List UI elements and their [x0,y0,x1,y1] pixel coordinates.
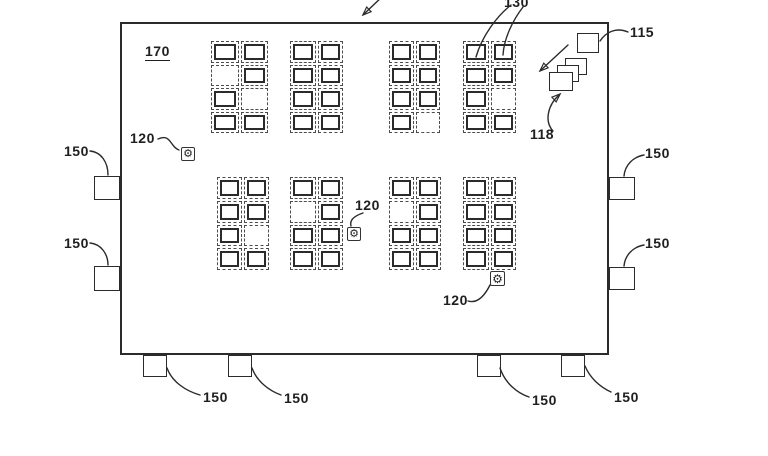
pallet-square [419,251,438,267]
robot-icon: ⚙ [181,147,195,161]
storage-cell [217,177,242,199]
pallet-square [214,91,236,107]
storage-cell [416,225,441,247]
storage-cell [318,177,344,199]
dock-door [609,177,635,200]
label-120-1: 120 [130,131,155,145]
storage-cell [491,201,517,223]
leader-150-l1 [90,151,108,175]
pallet-square [321,91,341,107]
storage-cell [318,112,344,134]
dock-door [94,176,120,200]
storage-cell [290,88,316,110]
storage-cell [463,201,489,223]
pallet-square [244,44,266,60]
storage-cell [318,248,344,270]
storage-block [462,176,517,271]
storage-cell [463,177,489,199]
storage-cell [318,65,344,87]
storage-cell [241,41,269,63]
storage-cell [416,201,441,223]
storage-block [289,40,344,134]
pallet-square [466,115,486,131]
storage-block [388,40,441,134]
storage-cell [463,225,489,247]
storage-cell [491,65,517,87]
storage-cell [241,112,269,134]
pallet-square [494,68,514,84]
leader-150-b1 [167,368,200,395]
pallet-square [293,228,313,244]
storage-cell [389,65,414,87]
pallet-square [419,204,438,220]
storage-cell [318,88,344,110]
label-120-2: 120 [355,198,380,212]
pallet-square [419,44,438,60]
container-square-118 [549,72,573,91]
storage-block [388,176,442,271]
label-150-left-1: 150 [64,144,89,158]
storage-cell [211,88,239,110]
leader-150-b2 [252,368,281,395]
pallet-square [321,228,341,244]
storage-cell [416,112,441,134]
patent-figure: 170 ⚙⚙⚙130115118120120120150150150150150… [0,0,768,456]
pallet-square [214,44,236,60]
storage-cell [217,248,242,270]
pallet-square [293,44,313,60]
dock-door [228,355,252,377]
pallet-square [220,204,239,220]
storage-cell [389,248,414,270]
pallet-square [392,91,411,107]
storage-cell [463,112,489,134]
leader-150-l2 [90,243,108,265]
storage-cell [290,201,316,223]
dock-door [477,355,501,377]
pallet-square [466,180,486,196]
storage-cell [211,112,239,134]
pallet-square [220,251,239,267]
leader-150-r1 [624,155,644,176]
gear-icon: ⚙ [492,273,503,285]
item-square-115 [577,33,599,53]
storage-cell [463,41,489,63]
storage-cell [389,41,414,63]
pallet-square [392,251,411,267]
label-150-bottom-2: 150 [284,391,309,405]
label-150-left-2: 150 [64,236,89,250]
pallet-square [321,115,341,131]
storage-cell [244,177,269,199]
storage-cell [491,112,517,134]
storage-cell [491,41,517,63]
storage-cell [244,225,269,247]
pallet-square [419,68,438,84]
label-150-bottom-1: 150 [203,390,228,404]
label-118: 118 [530,127,554,141]
storage-cell [290,41,316,63]
pallet-square [494,180,514,196]
label-150-right-1: 150 [645,146,670,160]
pallet-square [321,44,341,60]
storage-cell [416,41,441,63]
dock-door [94,266,120,291]
storage-cell [290,225,316,247]
storage-cell [244,248,269,270]
leader-150-b3 [500,368,529,397]
storage-cell [491,248,517,270]
storage-cell [463,248,489,270]
storage-cell [389,225,414,247]
pallet-square [214,115,236,131]
pallet-square [247,251,266,267]
storage-cell [217,201,242,223]
storage-cell [416,88,441,110]
pallet-square [244,68,266,84]
storage-cell [290,112,316,134]
pallet-square [321,180,341,196]
robot-icon: ⚙ [347,227,361,241]
pallet-square [466,204,486,220]
label-170: 170 [145,44,170,61]
storage-block [210,40,269,134]
pallet-square [466,228,486,244]
dock-door [609,267,635,290]
pallet-square [220,228,239,244]
storage-cell [389,177,414,199]
storage-cell [491,88,517,110]
storage-cell [318,201,344,223]
pallet-square [392,180,411,196]
pallet-square [466,251,486,267]
storage-cell [244,201,269,223]
pallet-square [494,115,514,131]
label-150-bottom-3: 150 [532,393,557,407]
pallet-square [321,204,341,220]
pallet-square [293,68,313,84]
storage-cell [416,65,441,87]
pallet-square [494,44,514,60]
storage-cell [318,41,344,63]
storage-cell [389,112,414,134]
label-120-3: 120 [443,293,468,307]
pallet-square [419,180,438,196]
label-150-bottom-4: 150 [614,390,639,404]
gear-icon: ⚙ [349,229,359,240]
leader-150-b4 [585,366,611,392]
storage-cell [463,65,489,87]
storage-cell [389,201,414,223]
storage-cell [211,41,239,63]
storage-cell [389,88,414,110]
pallet-square [293,251,313,267]
pallet-square [293,180,313,196]
pallet-square [419,228,438,244]
pallet-square [392,228,411,244]
pallet-square [466,44,486,60]
pallet-square [466,68,486,84]
storage-block [216,176,270,271]
label-130: 130 [504,0,529,9]
pallet-square [293,115,313,131]
storage-cell [217,225,242,247]
dock-door [143,355,167,377]
robot-icon: ⚙ [490,271,505,286]
pallet-square [321,251,341,267]
storage-cell [463,88,489,110]
pallet-square [220,180,239,196]
storage-block [289,176,344,271]
storage-cell [241,88,269,110]
storage-cell [491,225,517,247]
pallet-square [392,115,411,131]
storage-cell [416,248,441,270]
label-150-right-2: 150 [645,236,670,250]
storage-cell [318,225,344,247]
storage-cell [491,177,517,199]
figure-pointer-arrow [364,0,385,14]
pallet-square [392,44,411,60]
dock-door [561,355,585,377]
storage-cell [290,248,316,270]
pallet-square [466,91,486,107]
leader-150-r2 [624,245,644,266]
storage-cell [290,177,316,199]
pallet-square [392,68,411,84]
pallet-square [494,251,514,267]
pallet-square [293,91,313,107]
pallet-square [247,204,266,220]
facility-outline [120,22,609,355]
pallet-square [419,91,438,107]
storage-block [462,40,517,134]
storage-cell [241,65,269,87]
storage-cell [416,177,441,199]
pallet-square [494,204,514,220]
pallet-square [494,228,514,244]
pallet-square [321,68,341,84]
storage-cell [211,65,239,87]
pallet-square [247,180,266,196]
label-115: 115 [630,25,654,39]
gear-icon: ⚙ [183,149,193,160]
pallet-square [244,115,266,131]
storage-cell [290,65,316,87]
